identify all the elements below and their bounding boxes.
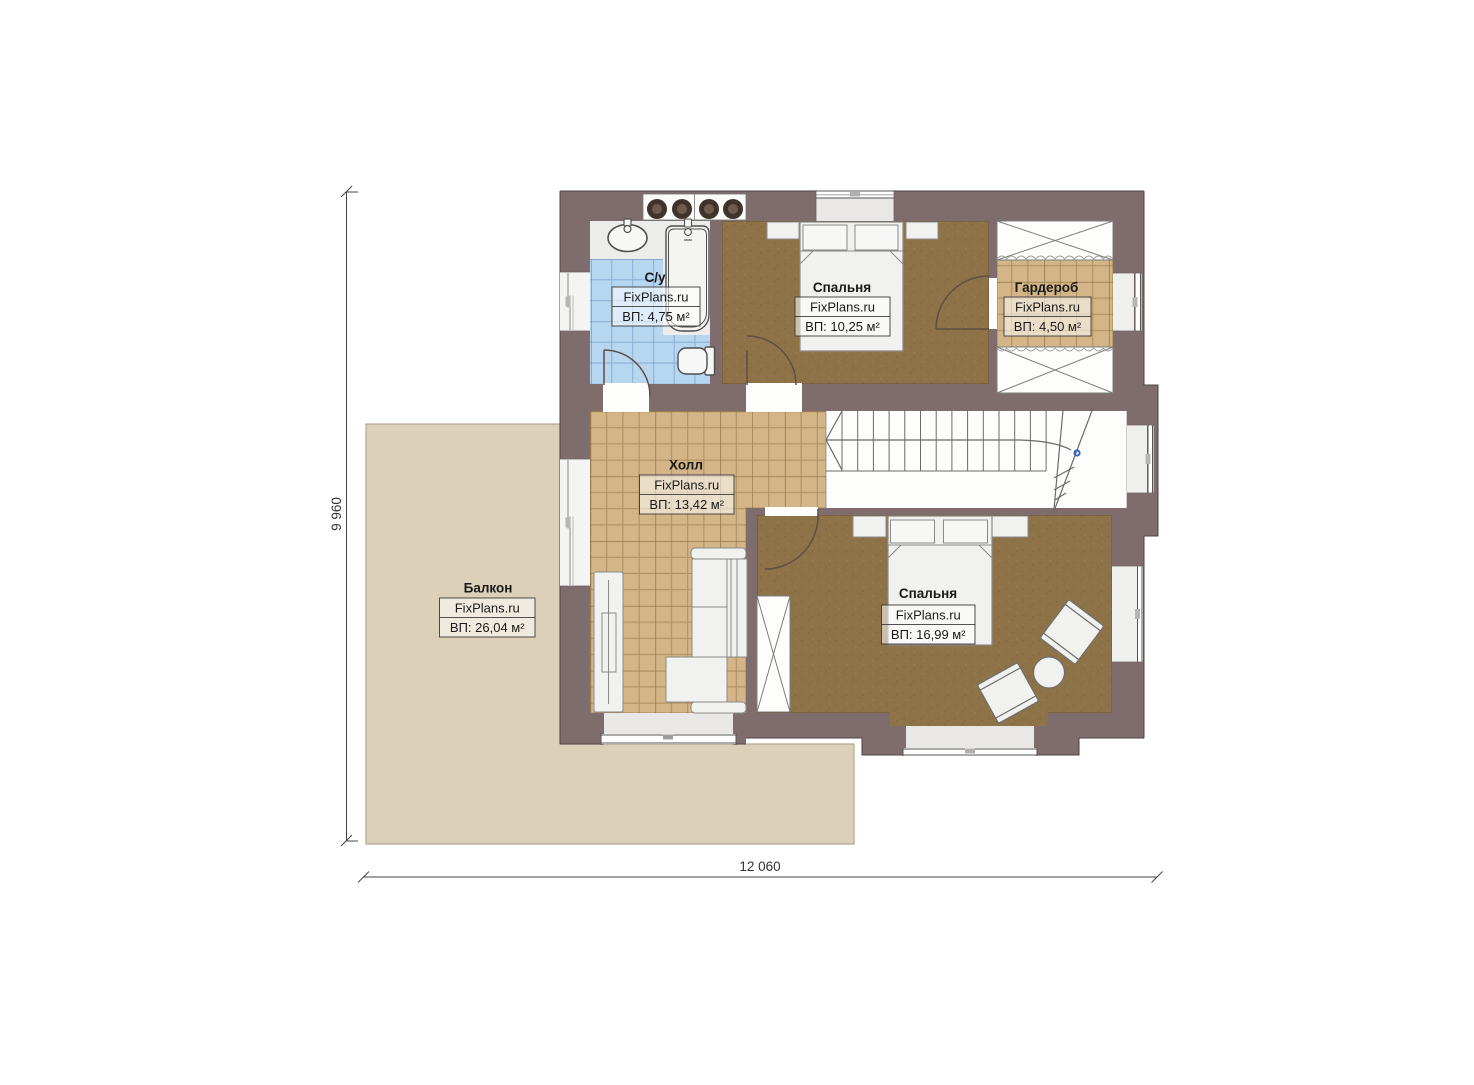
svg-text:FixPlans.ru: FixPlans.ru <box>623 290 688 305</box>
svg-text:ВП: 13,42 м²: ВП: 13,42 м² <box>649 497 724 512</box>
svg-text:Холл: Холл <box>669 458 703 473</box>
svg-text:ВП: 4,50 м²: ВП: 4,50 м² <box>1014 319 1082 334</box>
svg-text:FixPlans.ru: FixPlans.ru <box>455 601 520 616</box>
svg-text:Балкон: Балкон <box>464 581 513 596</box>
svg-text:Спальня: Спальня <box>899 586 957 601</box>
svg-text:С/у: С/у <box>644 270 666 285</box>
svg-text:FixPlans.ru: FixPlans.ru <box>896 608 961 623</box>
svg-text:ВП: 26,04 м²: ВП: 26,04 м² <box>450 620 525 635</box>
svg-text:FixPlans.ru: FixPlans.ru <box>1015 300 1080 315</box>
svg-text:ВП: 16,99 м²: ВП: 16,99 м² <box>891 627 966 642</box>
svg-text:FixPlans.ru: FixPlans.ru <box>654 478 719 493</box>
svg-text:Спальня: Спальня <box>813 280 871 295</box>
svg-text:Гардероб: Гардероб <box>1015 280 1079 295</box>
svg-text:ВП: 10,25 м²: ВП: 10,25 м² <box>805 319 880 334</box>
svg-text:FixPlans.ru: FixPlans.ru <box>810 300 875 315</box>
svg-text:ВП: 4,75 м²: ВП: 4,75 м² <box>622 309 690 324</box>
svg-text:12 060: 12 060 <box>739 859 780 874</box>
svg-text:9 960: 9 960 <box>329 497 344 531</box>
